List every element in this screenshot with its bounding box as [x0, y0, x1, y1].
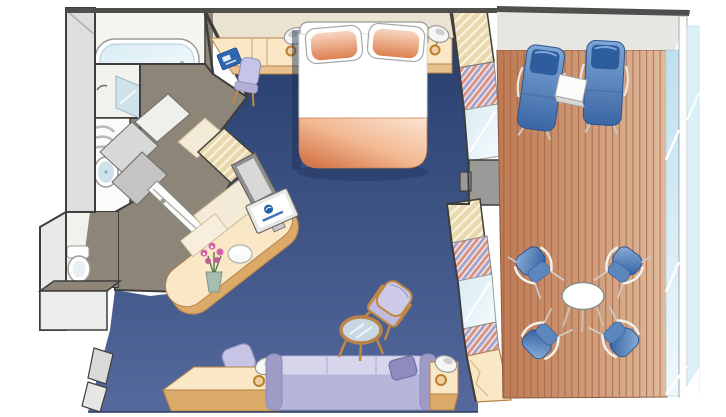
outer-wall-upper-left — [66, 8, 95, 212]
vanity-stool — [228, 245, 252, 263]
top-wall-dark-strip — [66, 8, 497, 13]
sofa — [266, 354, 436, 410]
toilet-seat — [73, 261, 86, 278]
floorplan-canvas — [0, 0, 726, 417]
washbasin-drain — [105, 171, 108, 174]
glass-railing — [666, 16, 699, 398]
queen-bed — [292, 22, 429, 181]
entry-door-knob — [161, 199, 166, 204]
stateroom-floorplan-illustration — [0, 0, 726, 417]
toilet-room — [66, 212, 118, 287]
bed-blanket — [299, 118, 427, 168]
pillow-left — [305, 25, 364, 65]
pillow-right — [367, 23, 426, 63]
sofa-arm-left — [266, 354, 282, 410]
balcony — [497, 6, 699, 398]
curtain-upper-1 — [459, 62, 498, 110]
outer-wall-box-face — [40, 291, 107, 330]
end-table-with-lamp — [430, 353, 459, 410]
end-table-front — [430, 394, 458, 410]
bench-front — [163, 390, 280, 411]
outer-wall-box-top — [40, 281, 120, 291]
